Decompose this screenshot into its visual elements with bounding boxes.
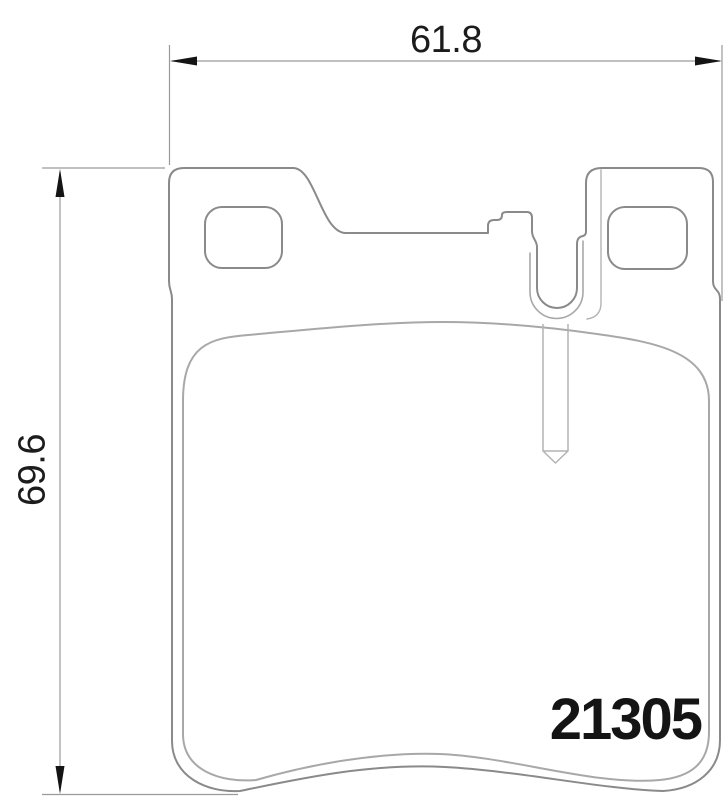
backplate-step-line: [587, 170, 601, 319]
mounting-hole-right: [608, 207, 687, 269]
mounting-hole-left: [205, 207, 282, 268]
drawing-canvas: 61.8 69.6 21305: [0, 0, 726, 800]
wear-sensor-pin: [543, 324, 568, 463]
arrow-right-icon: [695, 57, 722, 66]
part-number-label: 21305: [550, 687, 702, 752]
arrow-down-icon: [56, 766, 65, 794]
dimension-height: 69.6: [11, 168, 238, 795]
arrow-left-icon: [170, 57, 197, 66]
width-dimension-label: 61.8: [410, 19, 482, 61]
arrow-up-icon: [56, 169, 65, 197]
height-dimension-label: 69.6: [11, 434, 53, 506]
dimension-width: 61.8: [170, 19, 723, 301]
brake-pad-drawing: 61.8 69.6 21305: [0, 0, 726, 800]
